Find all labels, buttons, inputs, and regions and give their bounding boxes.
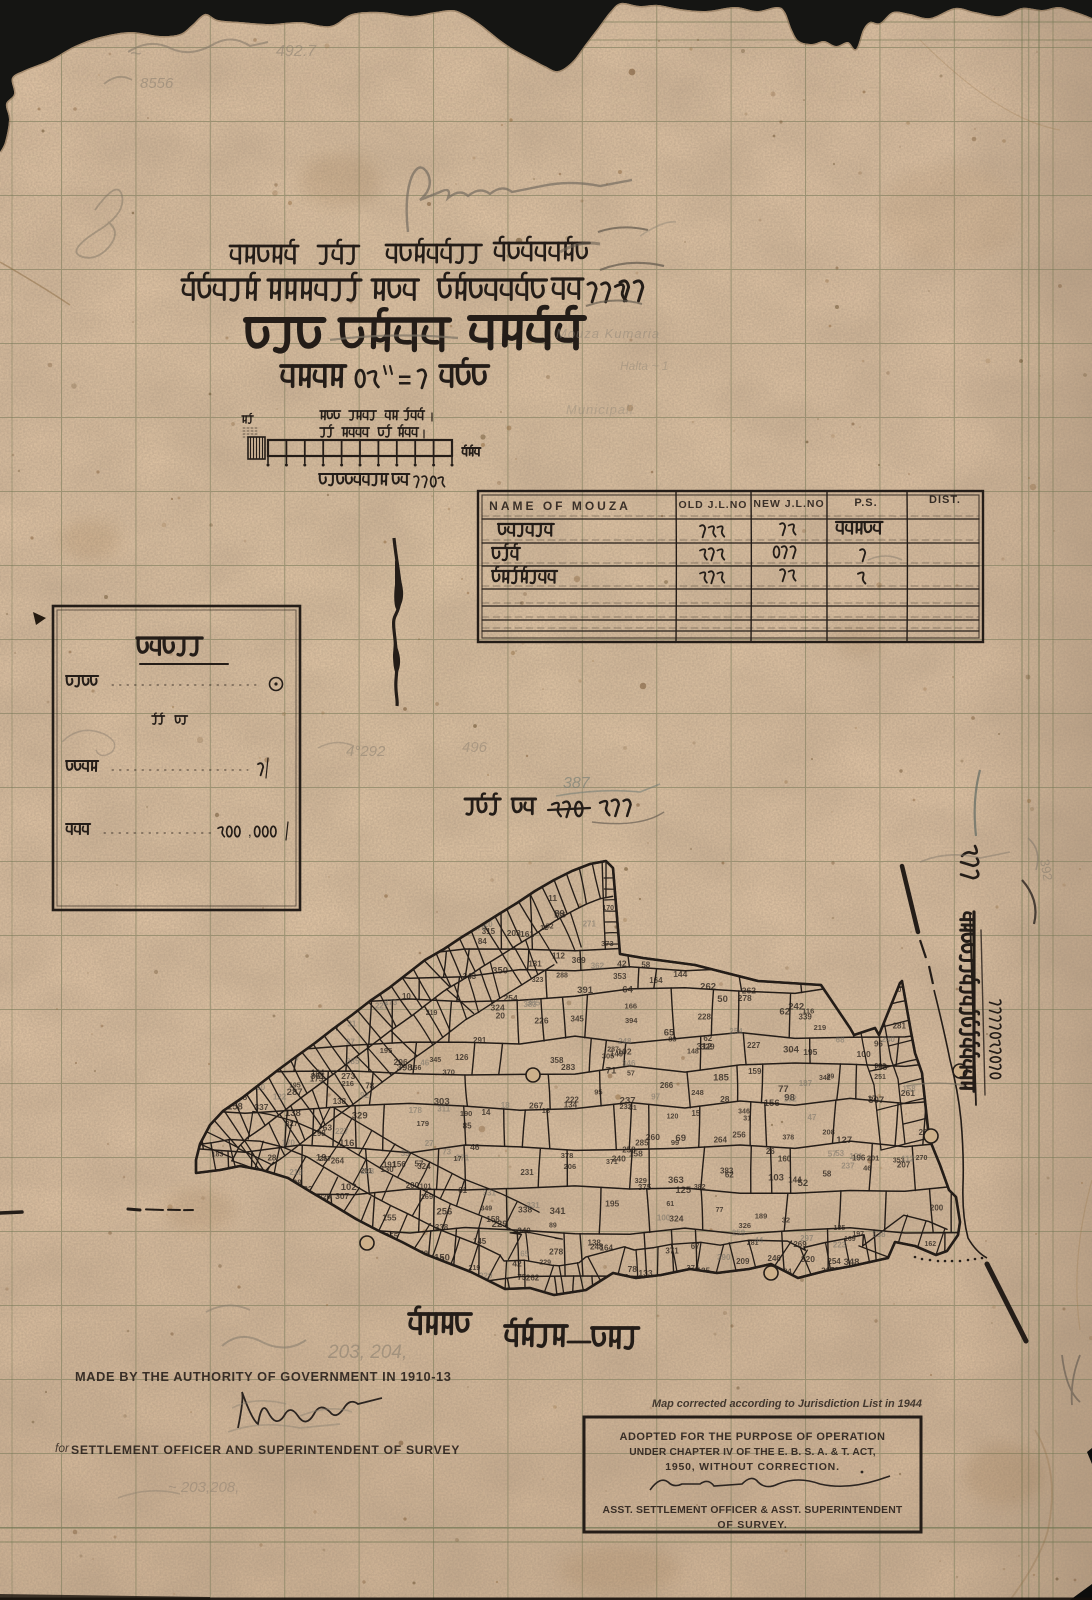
svg-text:65: 65: [664, 1028, 675, 1039]
svg-text:382: 382: [694, 1184, 706, 1191]
svg-text:346: 346: [738, 1109, 750, 1116]
svg-text:85: 85: [463, 1122, 472, 1131]
svg-text:15: 15: [691, 1109, 700, 1118]
svg-text:248: 248: [618, 1037, 632, 1046]
svg-text:353: 353: [613, 972, 627, 981]
svg-text:158: 158: [873, 1062, 887, 1072]
svg-text:OLD J.L.NO: OLD J.L.NO: [679, 499, 748, 511]
svg-text:P.S.: P.S.: [854, 497, 877, 509]
svg-text:324: 324: [417, 1162, 431, 1171]
svg-text:285: 285: [635, 1139, 649, 1148]
svg-text:28: 28: [267, 1153, 276, 1162]
svg-text:350: 350: [492, 966, 508, 977]
svg-text:201: 201: [867, 1154, 880, 1163]
svg-text:216: 216: [341, 1079, 354, 1088]
svg-text:337: 337: [254, 1102, 268, 1112]
svg-text:OF SURVEY.: OF SURVEY.: [717, 1519, 787, 1531]
svg-text:237: 237: [841, 1161, 855, 1170]
svg-text:125: 125: [675, 1185, 692, 1196]
svg-text:18: 18: [501, 1101, 510, 1110]
svg-text:Municipali: Municipali: [566, 402, 634, 417]
svg-text:264: 264: [331, 1157, 345, 1166]
svg-text:203: 203: [507, 928, 521, 938]
svg-text:200: 200: [930, 1203, 944, 1212]
svg-text:138: 138: [333, 1097, 347, 1106]
svg-text:223: 223: [833, 1241, 847, 1250]
svg-text:Halta ~ 1: Halta ~ 1: [620, 359, 668, 373]
svg-text:259: 259: [732, 1228, 746, 1237]
svg-text:323: 323: [532, 977, 544, 984]
svg-text:122: 122: [273, 1092, 287, 1101]
svg-text:320: 320: [801, 1254, 815, 1264]
svg-text:144: 144: [673, 969, 687, 979]
svg-text:121: 121: [849, 1152, 863, 1161]
svg-text:160: 160: [778, 1155, 792, 1164]
svg-text:126: 126: [455, 1053, 469, 1062]
svg-text:291: 291: [473, 1036, 487, 1045]
svg-text:240: 240: [882, 1035, 896, 1044]
svg-text:179: 179: [417, 1119, 430, 1128]
svg-text:338: 338: [435, 1223, 449, 1232]
svg-text:26: 26: [766, 1147, 775, 1156]
svg-text:327: 327: [285, 1119, 298, 1128]
svg-text:203, 204,: 203, 204,: [327, 1342, 407, 1363]
svg-text:340: 340: [517, 1226, 531, 1235]
svg-text:288: 288: [556, 972, 568, 979]
svg-text:Map corrected according to Ju: Map corrected according to Jurisdiction …: [652, 1398, 922, 1410]
svg-text:361: 361: [311, 1071, 325, 1081]
svg-text:69: 69: [675, 1133, 686, 1144]
svg-text:312: 312: [696, 1042, 712, 1053]
svg-text:65: 65: [520, 1250, 529, 1259]
svg-text:63: 63: [323, 1123, 333, 1133]
svg-text:394: 394: [625, 1016, 638, 1025]
svg-text:256: 256: [436, 1207, 452, 1218]
svg-text:ASST. SETTLEMENT OFFICER & ASS: ASST. SETTLEMENT OFFICER & ASST. SUPERIN…: [603, 1505, 903, 1516]
svg-text:149: 149: [610, 1050, 624, 1059]
svg-text:378: 378: [561, 1151, 574, 1160]
svg-text:169: 169: [421, 1192, 434, 1201]
svg-text:170: 170: [282, 1138, 296, 1147]
svg-text:190: 190: [460, 1109, 473, 1118]
svg-text:496: 496: [462, 739, 488, 756]
svg-text:61: 61: [666, 1201, 674, 1208]
svg-text:226: 226: [534, 1015, 548, 1025]
svg-text:339: 339: [799, 1012, 813, 1021]
svg-text:158: 158: [486, 1215, 500, 1224]
svg-text:200: 200: [406, 1181, 420, 1190]
svg-text:195: 195: [289, 1082, 301, 1089]
svg-text:SETTLEMENT OFFICER AND SUPERIN: SETTLEMENT OFFICER AND SUPERINTENDENT OF…: [71, 1443, 460, 1457]
svg-text:187: 187: [799, 1079, 813, 1088]
svg-text:209: 209: [736, 1257, 750, 1266]
svg-text:75: 75: [517, 1273, 526, 1282]
svg-text:178: 178: [409, 1106, 423, 1115]
svg-text:,: ,: [248, 824, 252, 839]
svg-text:57: 57: [627, 1071, 635, 1078]
svg-text:166: 166: [625, 1001, 638, 1010]
svg-text:78: 78: [365, 1082, 374, 1091]
svg-text:103: 103: [768, 1173, 784, 1184]
svg-text:297: 297: [800, 1234, 814, 1243]
svg-text:71: 71: [606, 1066, 617, 1077]
svg-text:307: 307: [868, 1095, 884, 1106]
svg-text:112: 112: [901, 1155, 914, 1164]
svg-text:62: 62: [725, 1171, 734, 1180]
svg-text:227: 227: [747, 1041, 761, 1050]
svg-text:84: 84: [478, 937, 487, 946]
svg-text:33: 33: [401, 1149, 410, 1158]
svg-text:78: 78: [628, 1264, 638, 1274]
svg-text:112: 112: [552, 952, 565, 961]
svg-text:345: 345: [429, 1057, 441, 1064]
svg-text:387: 387: [563, 775, 591, 792]
svg-text:42: 42: [617, 959, 627, 969]
svg-text:100: 100: [657, 1214, 671, 1223]
svg-text:31: 31: [347, 1020, 356, 1029]
svg-text:130: 130: [380, 1165, 394, 1174]
svg-text:251: 251: [874, 1074, 886, 1081]
svg-text:227: 227: [335, 1127, 349, 1136]
svg-text:342: 342: [819, 1075, 831, 1082]
svg-text:256: 256: [732, 1130, 746, 1139]
svg-text:219: 219: [426, 1010, 438, 1017]
svg-text:229: 229: [539, 1260, 551, 1267]
svg-text:102: 102: [341, 1182, 357, 1193]
svg-text:248: 248: [590, 1242, 604, 1251]
svg-text:73: 73: [442, 1147, 451, 1156]
svg-text:281: 281: [893, 1022, 907, 1031]
svg-text:64: 64: [622, 985, 633, 996]
svg-text:398: 398: [397, 1062, 413, 1073]
svg-text:271: 271: [456, 1154, 470, 1163]
svg-text:62: 62: [779, 1007, 790, 1018]
svg-text:206: 206: [564, 1162, 577, 1171]
svg-text:185: 185: [713, 1073, 730, 1084]
svg-text:338: 338: [872, 1230, 886, 1239]
svg-text:278: 278: [738, 993, 752, 1003]
svg-text:195: 195: [380, 1046, 393, 1055]
svg-text:97: 97: [651, 1092, 660, 1101]
svg-text:42: 42: [512, 1258, 522, 1268]
svg-text:158: 158: [629, 1148, 643, 1158]
svg-text:283: 283: [561, 1062, 575, 1072]
svg-text:144: 144: [788, 1176, 802, 1185]
svg-text:47: 47: [808, 1113, 817, 1122]
svg-text:346: 346: [622, 1059, 636, 1068]
svg-text:155: 155: [382, 1213, 396, 1223]
svg-text:100: 100: [857, 1049, 871, 1059]
svg-text:246: 246: [768, 1254, 782, 1263]
svg-text:228: 228: [698, 1013, 712, 1022]
svg-text:369: 369: [572, 955, 586, 965]
svg-text:324: 324: [669, 1213, 683, 1223]
svg-text:208: 208: [822, 1128, 835, 1137]
svg-text:19: 19: [316, 1152, 327, 1163]
svg-text:for: for: [55, 1441, 70, 1455]
svg-text:270: 270: [916, 1155, 928, 1162]
svg-text:345: 345: [571, 1015, 585, 1024]
svg-text:237: 237: [620, 1096, 636, 1107]
svg-text:127: 127: [836, 1135, 852, 1146]
svg-text:371: 371: [665, 1246, 679, 1255]
svg-text:195: 195: [605, 1199, 619, 1209]
svg-text:145: 145: [473, 1237, 487, 1246]
svg-text:331: 331: [526, 1201, 540, 1210]
svg-text:264: 264: [714, 1135, 728, 1144]
svg-text:311: 311: [437, 1104, 450, 1113]
svg-text:138: 138: [285, 1108, 301, 1119]
svg-text:219: 219: [814, 1023, 827, 1032]
svg-text:195: 195: [803, 1047, 817, 1057]
svg-text:8556: 8556: [140, 75, 174, 92]
svg-text:28: 28: [720, 1094, 730, 1104]
svg-text:266: 266: [660, 1081, 674, 1090]
svg-text:89: 89: [549, 1222, 557, 1229]
svg-text:27: 27: [425, 1139, 434, 1148]
svg-text:156: 156: [764, 1098, 780, 1109]
svg-text:262: 262: [700, 982, 716, 993]
svg-text:228: 228: [361, 1167, 375, 1176]
svg-text:135: 135: [834, 1225, 846, 1232]
svg-text:61: 61: [458, 1186, 467, 1195]
svg-text:27: 27: [346, 1037, 355, 1046]
svg-text:390: 390: [717, 1253, 731, 1262]
svg-text:375: 375: [638, 1183, 652, 1192]
svg-text:20: 20: [496, 1011, 506, 1021]
svg-text:MADE BY THE AUTHORITY OF GOVER: MADE BY THE AUTHORITY OF GOVERNMENT IN 1…: [75, 1369, 452, 1384]
svg-text:46: 46: [420, 1058, 429, 1067]
svg-text:349: 349: [480, 1206, 492, 1213]
svg-text:131: 131: [528, 959, 542, 968]
svg-text:391: 391: [577, 985, 594, 996]
svg-text:31: 31: [743, 1116, 751, 1123]
svg-text:DIST.: DIST.: [929, 494, 961, 506]
svg-text:371: 371: [606, 1159, 618, 1166]
svg-text:227: 227: [375, 1002, 389, 1011]
svg-text:11: 11: [548, 893, 557, 903]
svg-text:UNDER CHAPTER IV OF THE E. B.: UNDER CHAPTER IV OF THE E. B. S. A. & T.…: [629, 1447, 876, 1458]
svg-text:262: 262: [526, 1273, 540, 1282]
svg-text:161: 161: [520, 929, 534, 939]
svg-text:116: 116: [339, 1138, 354, 1149]
svg-text:492.7: 492.7: [276, 43, 317, 60]
svg-text:135: 135: [554, 913, 566, 920]
svg-text:10: 10: [402, 992, 411, 1001]
svg-text:331: 331: [483, 1189, 497, 1198]
svg-text:248: 248: [691, 1088, 704, 1097]
svg-text:58: 58: [822, 1170, 831, 1179]
svg-text:NAME OF MOUZA: NAME OF MOUZA: [489, 499, 631, 513]
svg-text:58: 58: [641, 961, 650, 970]
svg-text:95: 95: [594, 1088, 602, 1097]
svg-text:53: 53: [835, 1149, 844, 1158]
svg-text:267: 267: [529, 1101, 543, 1111]
svg-text:170: 170: [602, 905, 614, 912]
svg-text:341: 341: [550, 1206, 567, 1217]
svg-text:101: 101: [420, 1184, 432, 1191]
svg-text:44: 44: [754, 1236, 763, 1245]
svg-text:164: 164: [649, 976, 663, 985]
svg-text:254: 254: [729, 1027, 743, 1036]
svg-text:162: 162: [924, 1241, 936, 1248]
svg-text:1950, WITHOUT CORRECTION.: 1950, WITHOUT CORRECTION.: [665, 1461, 840, 1473]
svg-text:120: 120: [667, 1114, 679, 1121]
svg-text:NEW J.L.NO: NEW J.L.NO: [753, 498, 824, 510]
svg-text:231: 231: [520, 1168, 534, 1177]
svg-text:92: 92: [360, 1091, 369, 1100]
svg-text:46: 46: [863, 1163, 871, 1172]
svg-text:242: 242: [788, 1002, 804, 1013]
svg-text:278: 278: [549, 1247, 563, 1257]
svg-text:304: 304: [783, 1045, 800, 1056]
svg-text:ADOPTED FOR THE PURPOSE OF OPE: ADOPTED FOR THE PURPOSE OF OPERATION: [620, 1431, 886, 1443]
svg-text:373: 373: [601, 939, 614, 948]
svg-text:14: 14: [482, 1108, 491, 1117]
svg-text:271: 271: [583, 920, 597, 929]
svg-text:254: 254: [504, 993, 518, 1003]
svg-text:329: 329: [352, 1110, 368, 1121]
svg-text:46: 46: [470, 1142, 480, 1152]
svg-text:343: 343: [463, 972, 477, 981]
svg-text:192: 192: [784, 1095, 798, 1104]
svg-text:50: 50: [717, 994, 728, 1005]
svg-text:362: 362: [591, 962, 605, 971]
svg-text:370: 370: [442, 1068, 455, 1077]
svg-text:52: 52: [546, 924, 554, 931]
svg-text:189: 189: [755, 1212, 768, 1221]
svg-text:Mouza Kumaria: Mouza Kumaria: [556, 326, 660, 341]
svg-text:32: 32: [782, 1215, 790, 1224]
svg-text:365: 365: [527, 999, 541, 1008]
svg-text:67: 67: [691, 1242, 700, 1251]
svg-text:183: 183: [212, 1151, 224, 1158]
svg-text:62: 62: [703, 1034, 712, 1043]
svg-text:77: 77: [716, 1207, 724, 1214]
svg-text:378: 378: [782, 1134, 794, 1141]
svg-text:=: =: [398, 367, 411, 393]
svg-text:159: 159: [748, 1067, 762, 1076]
svg-text:134: 134: [564, 1101, 578, 1110]
svg-text:385: 385: [346, 1057, 360, 1066]
svg-text:68: 68: [836, 1036, 845, 1045]
svg-text:218: 218: [289, 1168, 303, 1177]
